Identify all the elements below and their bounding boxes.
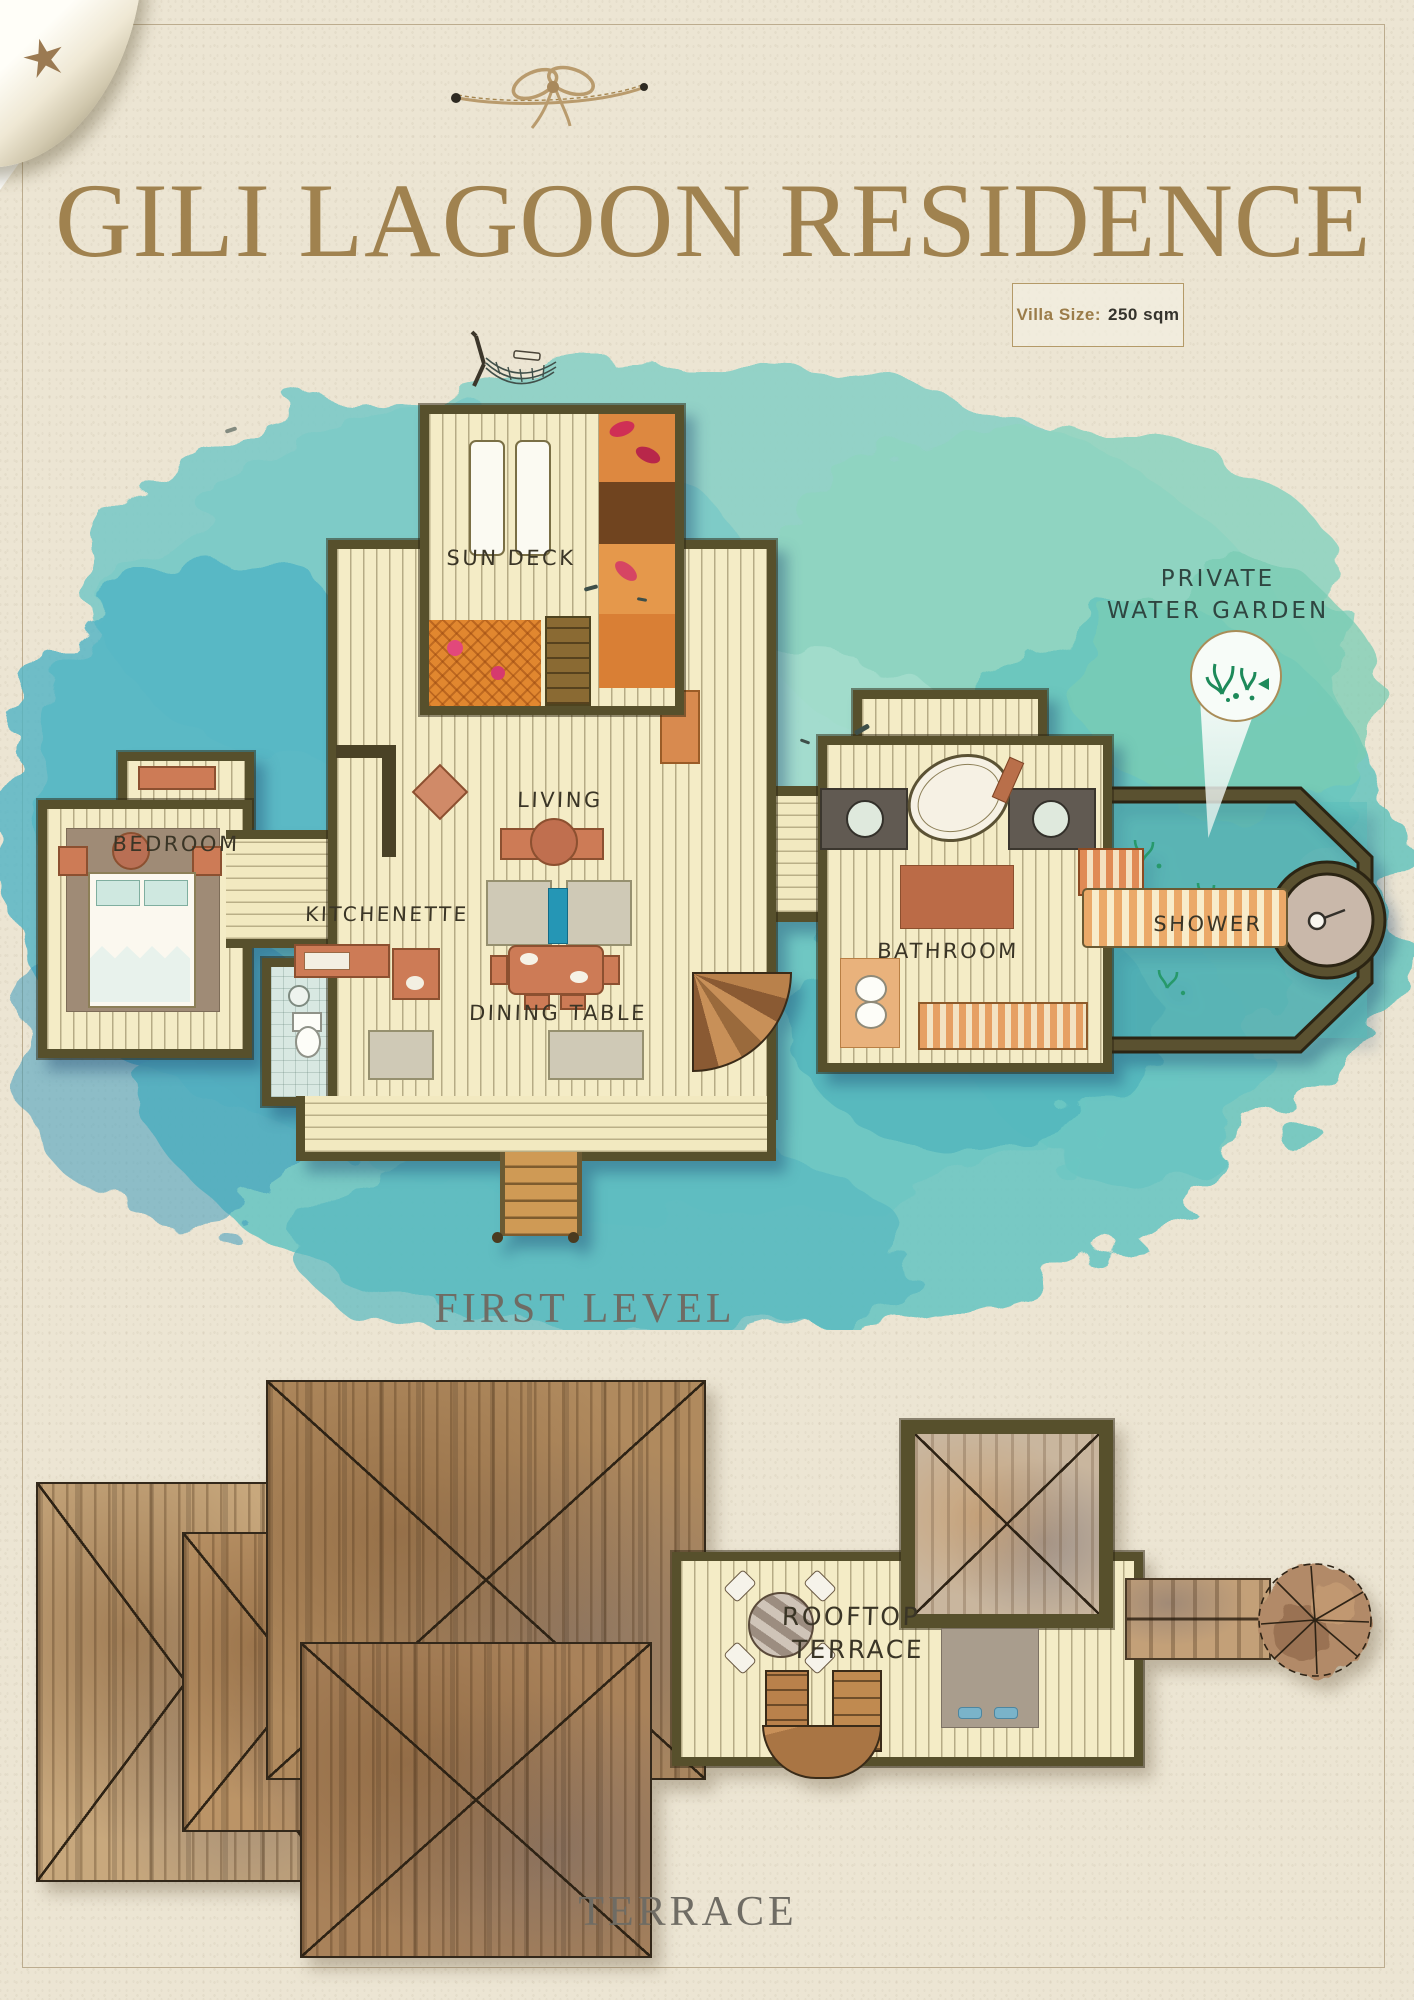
label-living: LIVING	[517, 788, 603, 812]
stair-fan-landing	[762, 1725, 882, 1779]
flower	[447, 640, 463, 656]
label-dining-table: DINING TABLE	[469, 1001, 648, 1025]
island-sink	[406, 976, 424, 990]
label-shower: SHOWER	[1153, 912, 1263, 936]
bedroom-bench	[138, 766, 216, 790]
wc-sink	[288, 985, 310, 1007]
kitchen-sink	[304, 952, 350, 970]
vanity-left	[820, 788, 908, 850]
kitchen-counter	[294, 944, 390, 978]
lounger	[515, 440, 551, 556]
terrace-plan: ROOFTOP TERRACE	[0, 1340, 1414, 1980]
label-sun-deck: SUN DECK	[446, 546, 576, 570]
label-bedroom: BEDROOM	[112, 832, 240, 856]
bedroom-corridor	[226, 830, 336, 948]
toilet-mat	[840, 958, 900, 1048]
spiral-stairs	[692, 972, 792, 1072]
pillow	[994, 1707, 1018, 1719]
pavilion-roof	[901, 1420, 1113, 1628]
pillow	[96, 880, 140, 906]
bed	[88, 872, 196, 1008]
round-ottoman	[530, 818, 578, 866]
plunge-pool	[548, 888, 568, 944]
label-rooftop-terrace: TERRACE	[791, 1635, 924, 1664]
sofa-right	[566, 880, 632, 946]
poster-page: GILI LAGOON RESIDENCE Villa Size: 250 sq…	[0, 0, 1414, 2000]
entry-steps	[500, 1152, 582, 1236]
step-post	[568, 1232, 579, 1243]
sink	[1032, 800, 1070, 838]
flower	[491, 666, 505, 680]
toilet-bowl	[855, 975, 887, 1003]
deck-steps	[545, 616, 591, 706]
floor-cushion	[368, 1030, 434, 1080]
seaweed-icon	[1192, 632, 1276, 716]
lounge-mat	[941, 1628, 1039, 1728]
daybed-mat-dark	[599, 482, 675, 544]
flower-petal	[633, 443, 662, 467]
deck-mat	[429, 620, 541, 706]
daybed-column	[599, 414, 675, 706]
callout-pin-bubble	[1190, 630, 1282, 722]
caption-first-level: FIRST LEVEL	[434, 1285, 735, 1333]
label-kitchenette: KITCHENETTE	[305, 902, 469, 926]
wall-stub	[382, 745, 396, 857]
toilet-seat	[855, 1001, 887, 1029]
bath-rug	[900, 865, 1014, 929]
daybed-mat	[599, 414, 675, 482]
bed-blanket	[90, 946, 190, 1002]
plate	[520, 953, 538, 965]
label-private: PRIVATE	[1161, 566, 1275, 592]
flower-petal	[612, 557, 641, 584]
daybed-mat	[599, 544, 675, 614]
nightstand-left	[58, 846, 88, 876]
pillow	[958, 1707, 982, 1719]
floor-cushion	[548, 1030, 644, 1080]
daybed-mat	[599, 614, 675, 688]
label-water-garden: WATER GARDEN	[1107, 598, 1329, 624]
dining-table	[508, 945, 604, 995]
vanity-right	[1008, 788, 1096, 850]
tree-icon	[1245, 1552, 1385, 1692]
pillow	[144, 880, 188, 906]
label-bathroom: BATHROOM	[877, 939, 1019, 963]
kitchen-island	[392, 948, 440, 1000]
plate	[570, 971, 588, 983]
toilet-bowl	[295, 1026, 321, 1058]
flower-petal	[607, 418, 636, 440]
dining-chair	[602, 955, 620, 985]
wall-stub	[336, 745, 394, 758]
sofa-left	[486, 880, 552, 946]
dining-chair	[490, 955, 508, 985]
caption-terrace: TERRACE	[578, 1888, 797, 1936]
label-rooftop: ROOFTOP	[781, 1602, 920, 1631]
step-post	[492, 1232, 503, 1243]
sink	[846, 800, 884, 838]
bath-bench	[918, 1002, 1088, 1050]
lounger	[469, 440, 505, 556]
